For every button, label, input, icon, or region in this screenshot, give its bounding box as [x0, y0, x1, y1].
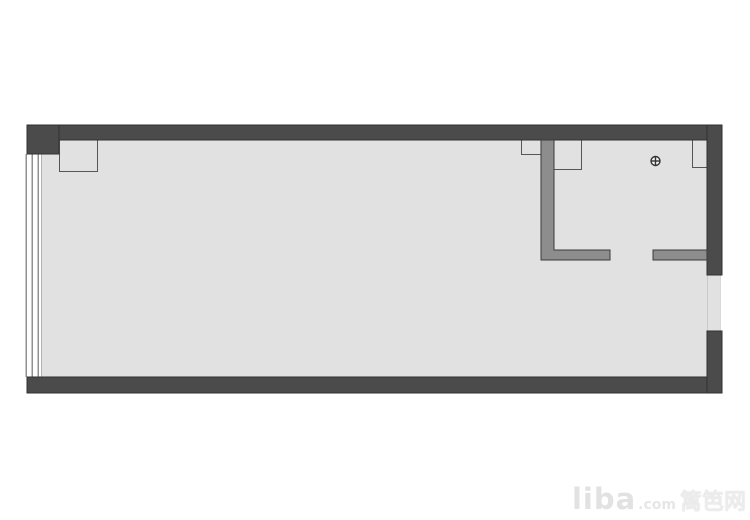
- opening-right-wall: [707, 275, 720, 331]
- watermark-domain: .com: [638, 497, 676, 513]
- watermark-brand: liba: [572, 482, 636, 516]
- watermark-site-name: 篱笆网: [680, 484, 746, 516]
- watermark: liba .com 篱笆网: [572, 482, 746, 516]
- floor-plan-drawing: [0, 0, 750, 520]
- partition-wall-right-stub: [653, 250, 707, 260]
- wall-right-upper: [707, 125, 722, 275]
- wall-corner-top-left: [27, 125, 59, 154]
- wall-right-lower: [707, 331, 722, 393]
- column-partition-right: [554, 140, 582, 170]
- wall-bottom: [27, 377, 722, 393]
- wall-top: [27, 125, 722, 140]
- column-partition-left: [521, 140, 541, 155]
- floor-plan-page: liba .com 篱笆网: [0, 0, 750, 520]
- column-right: [692, 140, 708, 168]
- column-top-left: [59, 140, 98, 172]
